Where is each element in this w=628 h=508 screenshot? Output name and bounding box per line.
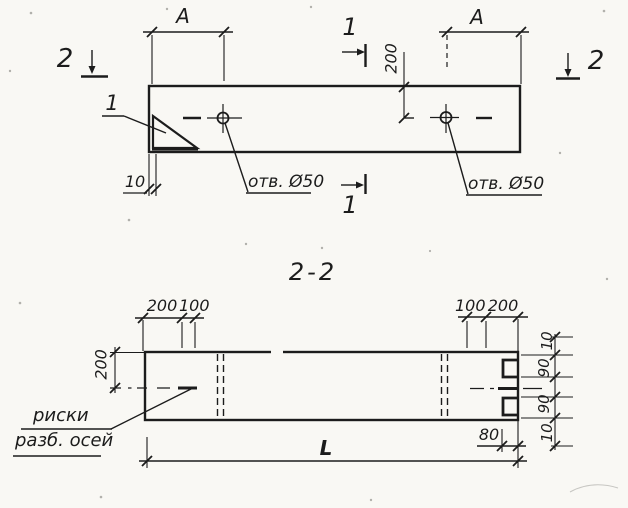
groove-top [503,360,517,377]
dimension-a-right [439,32,529,84]
note-line-2: разб. осей [15,432,113,451]
dim-200-label: 200 [384,28,401,88]
cut-1-label-bottom: 1 [340,193,360,218]
dim-length-label: L [316,438,336,459]
section-beam-outline [145,352,518,420]
dim-100-top-right: 100 [455,298,485,315]
hole-note-right: отв. Ø50 [468,176,544,194]
dim-a-left-label: A [168,6,198,27]
section-cut-marker-2-right [556,53,580,79]
plan-view [81,27,580,196]
cut-1-label-top: 1 [340,15,360,40]
scan-scratch [570,485,618,492]
dim-200-side-left: 200 [94,334,111,394]
dim-10-right-bottom: 10 [540,403,556,463]
axis-line [110,388,542,389]
note-line-1: риски [33,407,89,426]
edge-break [271,349,283,355]
hole-note-left: отв. Ø50 [248,174,324,192]
section-title: 2-2 [283,260,343,285]
dim-200-top-right: 200 [486,298,520,315]
dim-200-top-left: 200 [146,298,178,315]
dim-100-top-left: 100 [179,298,209,315]
drawing-sheet: A A 2 2 1 1 1 200 отв. Ø50 отв. Ø50 10 2… [0,0,628,508]
dimension-top-right [458,317,528,351]
lifting-hole-right [405,104,492,133]
dimension-a-left [143,32,233,84]
hidden-lines [218,354,448,419]
groove-bottom [503,398,517,415]
beam-outline [149,86,520,152]
plan-dim-ticks [144,27,526,194]
dimension-top-left [135,318,204,351]
corner-mark-number: 1 [100,92,124,114]
lifting-hole-left [183,104,242,133]
dim-10-label: 10 [123,174,147,191]
section-2-label-right: 2 [583,48,609,75]
section-cut-marker-1-top [342,44,366,67]
dim-a-right-label: A [462,7,492,28]
dim-80-label: 80 [476,427,502,444]
corner-triangle-mark [153,116,197,148]
section-2-label-left: 2 [52,46,78,73]
dimension-200-left [110,347,144,393]
section-cut-marker-2-left [81,50,108,77]
setting-out-marks [178,388,517,389]
